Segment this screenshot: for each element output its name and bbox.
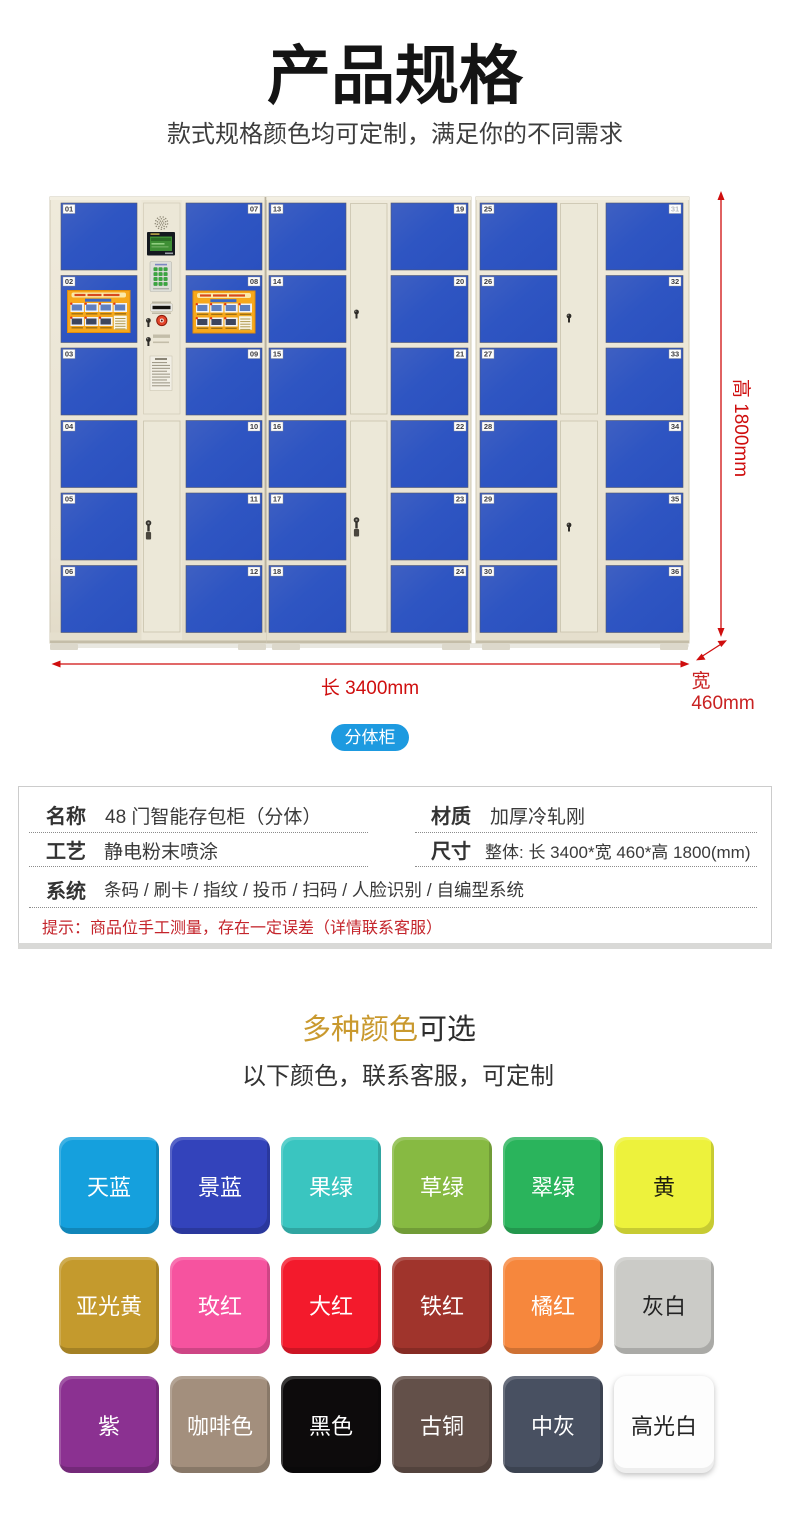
svg-text:34: 34 (671, 422, 680, 431)
svg-text:31: 31 (671, 205, 679, 214)
svg-text:35: 35 (671, 495, 679, 504)
svg-text:02: 02 (65, 277, 73, 286)
svg-text:27: 27 (484, 350, 492, 359)
svg-text:15: 15 (273, 350, 281, 359)
svg-text:高 1800mm: 高 1800mm (730, 379, 752, 477)
svg-text:14: 14 (273, 277, 282, 286)
svg-text:11: 11 (250, 495, 258, 504)
svg-text:长 3400mm: 长 3400mm (321, 677, 419, 699)
svg-text:05: 05 (65, 495, 73, 504)
svg-text:32: 32 (671, 277, 679, 286)
svg-text:29: 29 (484, 495, 492, 504)
svg-text:36: 36 (671, 567, 679, 576)
svg-text:460mm: 460mm (691, 693, 754, 714)
svg-text:06: 06 (65, 567, 73, 576)
svg-text:22: 22 (456, 422, 464, 431)
svg-text:12: 12 (250, 567, 258, 576)
svg-text:13: 13 (273, 205, 281, 214)
svg-text:01: 01 (65, 205, 73, 214)
svg-text:33: 33 (671, 350, 679, 359)
svg-text:30: 30 (484, 567, 492, 576)
svg-text:09: 09 (250, 350, 258, 359)
svg-text:16: 16 (273, 422, 281, 431)
svg-text:07: 07 (250, 205, 258, 214)
svg-text:04: 04 (65, 422, 74, 431)
svg-text:03: 03 (65, 350, 73, 359)
svg-text:26: 26 (484, 277, 492, 286)
svg-text:10: 10 (250, 422, 258, 431)
svg-text:宽: 宽 (691, 670, 710, 692)
svg-text:24: 24 (456, 567, 465, 576)
svg-text:19: 19 (456, 205, 464, 214)
svg-text:25: 25 (484, 205, 492, 214)
svg-text:23: 23 (456, 495, 464, 504)
svg-text:28: 28 (484, 422, 492, 431)
svg-text:20: 20 (456, 277, 464, 286)
svg-text:08: 08 (250, 277, 258, 286)
svg-text:21: 21 (456, 350, 464, 359)
svg-text:18: 18 (273, 567, 281, 576)
svg-text:17: 17 (273, 495, 281, 504)
